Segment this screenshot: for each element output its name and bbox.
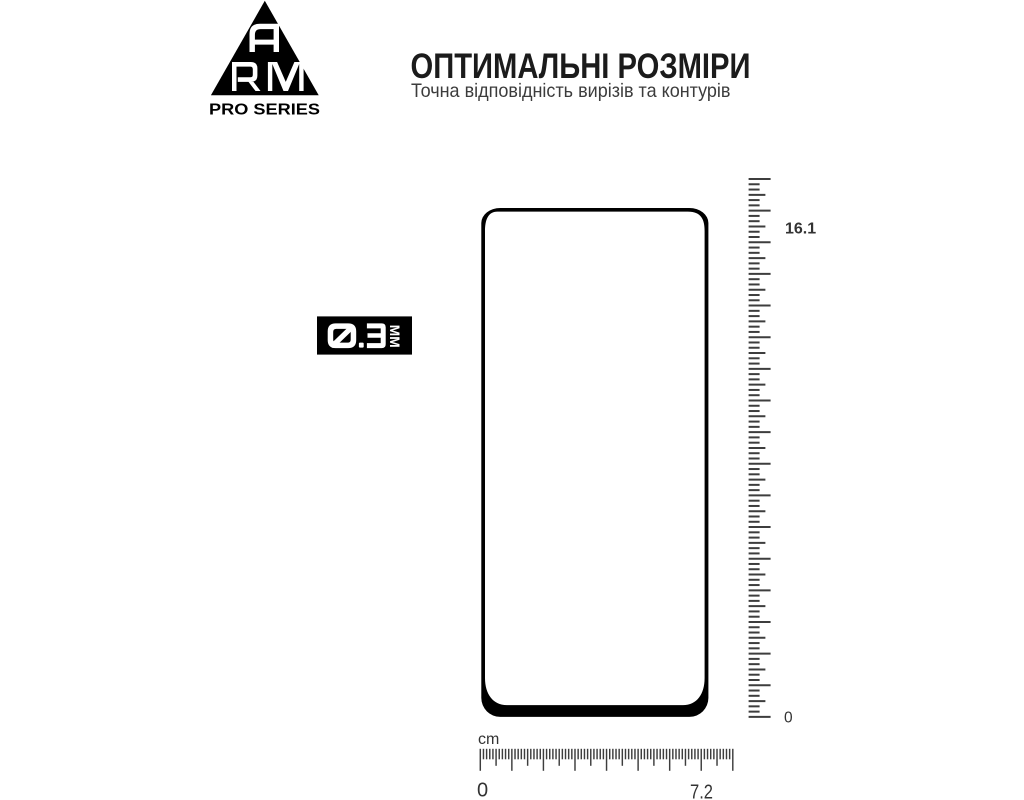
svg-text:cm: cm <box>478 731 499 748</box>
svg-text:16.1: 16.1 <box>785 221 816 238</box>
svg-text:0: 0 <box>784 709 793 726</box>
svg-text:PRO SERIES: PRO SERIES <box>209 101 320 118</box>
svg-text:ММ: ММ <box>387 325 402 348</box>
svg-text:Точна відповідність вирізів та: Точна відповідність вирізів та контурів <box>411 80 731 102</box>
svg-text:0: 0 <box>477 779 488 800</box>
svg-text:7.2: 7.2 <box>690 781 713 800</box>
